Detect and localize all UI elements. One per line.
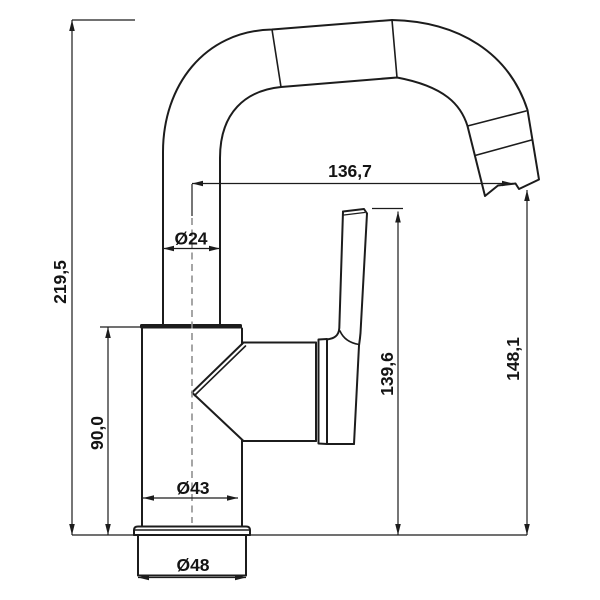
arrow-down	[105, 524, 111, 535]
nozzle-joint-line	[468, 111, 527, 126]
lever-tip-inner-line	[344, 213, 365, 216]
nozzle-joint-line	[475, 140, 532, 156]
spout-joint-line	[272, 30, 281, 88]
arrow-up	[69, 20, 75, 31]
dimension-riser-diameter: Ø24	[163, 229, 220, 252]
cone-lower-edge	[192, 393, 244, 442]
arrow-right	[502, 181, 513, 187]
arrow-down	[69, 524, 75, 535]
arrow-left	[143, 495, 154, 501]
arrow-up	[105, 327, 111, 338]
dimension-body-height: 90,0	[87, 327, 141, 535]
dimension-label: 148,1	[503, 337, 523, 381]
handle-collar	[319, 339, 328, 444]
riser-mounting-plate	[140, 324, 242, 329]
dimension-label: 219,5	[50, 260, 70, 304]
dimension-base-diameter: Ø48	[138, 555, 246, 580]
lever-left-edge	[327, 212, 343, 340]
cone-upper-edge	[192, 343, 243, 393]
dimension-label: Ø48	[176, 555, 209, 575]
dimension-label: 90,0	[87, 416, 107, 450]
dimension-handle-top-height: 139,6	[372, 209, 403, 536]
arrow-left	[163, 246, 174, 252]
arrow-right	[227, 495, 238, 501]
dimension-outlet-height: 148,1	[503, 190, 530, 535]
handle-assembly	[319, 209, 368, 444]
arrow-right	[209, 246, 220, 252]
dimension-label: 139,6	[377, 352, 397, 396]
arrow-up	[524, 190, 530, 201]
technical-drawing-canvas: 219,5 90,0 136,7 Ø24 Ø43 Ø48	[0, 0, 600, 600]
dimension-label: Ø43	[176, 478, 209, 498]
dimension-overall-height: 219,5	[50, 20, 135, 535]
lever-right-edge	[354, 214, 367, 445]
arrow-up	[395, 212, 401, 223]
dimension-label: 136,7	[328, 161, 372, 181]
arrow-left	[192, 181, 203, 187]
lever-base-fillet	[340, 331, 359, 345]
spout-joint-line	[392, 20, 397, 78]
dimension-label: Ø24	[174, 229, 207, 249]
arrow-down	[524, 524, 530, 535]
dimension-body-diameter: Ø43	[143, 478, 238, 501]
dimension-spout-reach: 136,7	[192, 161, 513, 216]
cone-upper-edge-highlight	[195, 346, 246, 396]
faucet-dimension-diagram: 219,5 90,0 136,7 Ø24 Ø43 Ø48	[0, 0, 600, 600]
arrow-down	[395, 524, 401, 535]
